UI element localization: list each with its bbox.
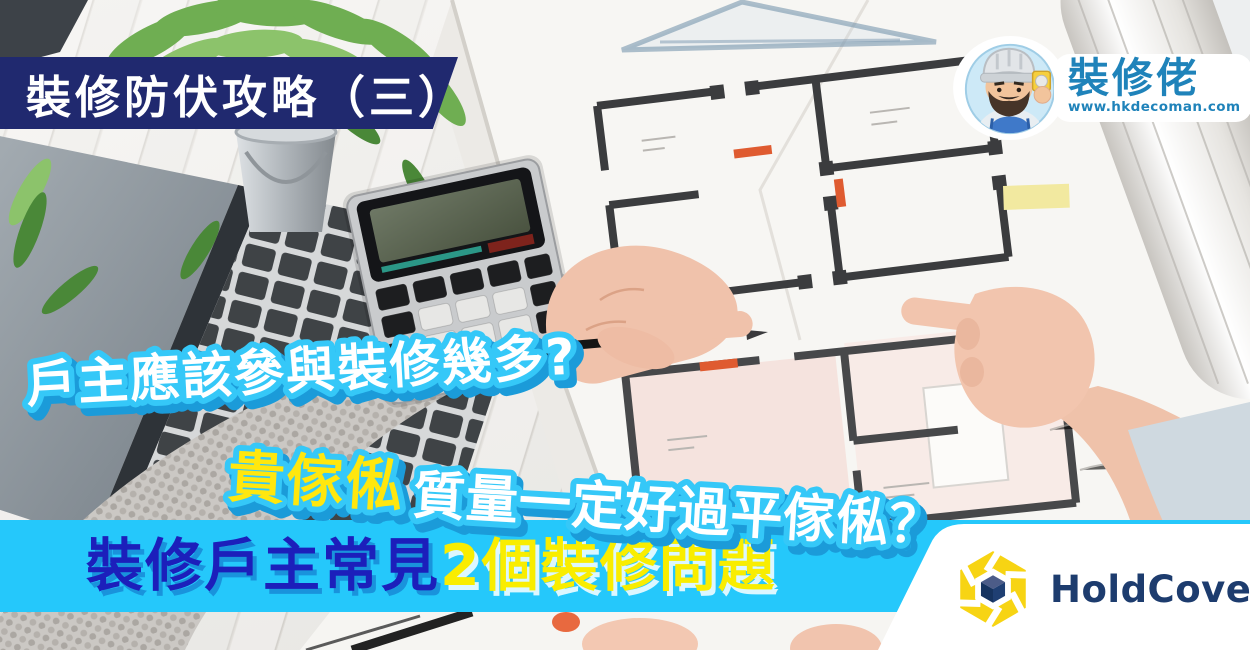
band-text-prefix: 裝修戶主常見 [86,538,440,595]
promo-poster: 裝修戶主常見2個裝修問題 HoldCover 戶主應該參與裝修幾多? 戶主應該參… [0,0,1250,650]
partner-name: HoldCover [1050,568,1250,611]
metal-bucket [236,121,336,232]
series-title-banner: 裝修防伏攻略（三） [0,57,458,129]
brand-website: www.hkdecoman.com [1068,99,1240,115]
partner-logo: HoldCover [950,546,1250,632]
brand-badge: 裝修佬 www.hkdecoman.com [950,34,1250,142]
series-title: 裝修防伏攻略（三） [26,61,467,126]
headline2-highlight-text: 貴傢俬 [226,444,407,520]
brand-text-card: 裝修佬 www.hkdecoman.com [1054,54,1250,122]
brand-name: 裝修佬 [1068,58,1240,100]
yellow-highlight-note [1003,184,1070,210]
